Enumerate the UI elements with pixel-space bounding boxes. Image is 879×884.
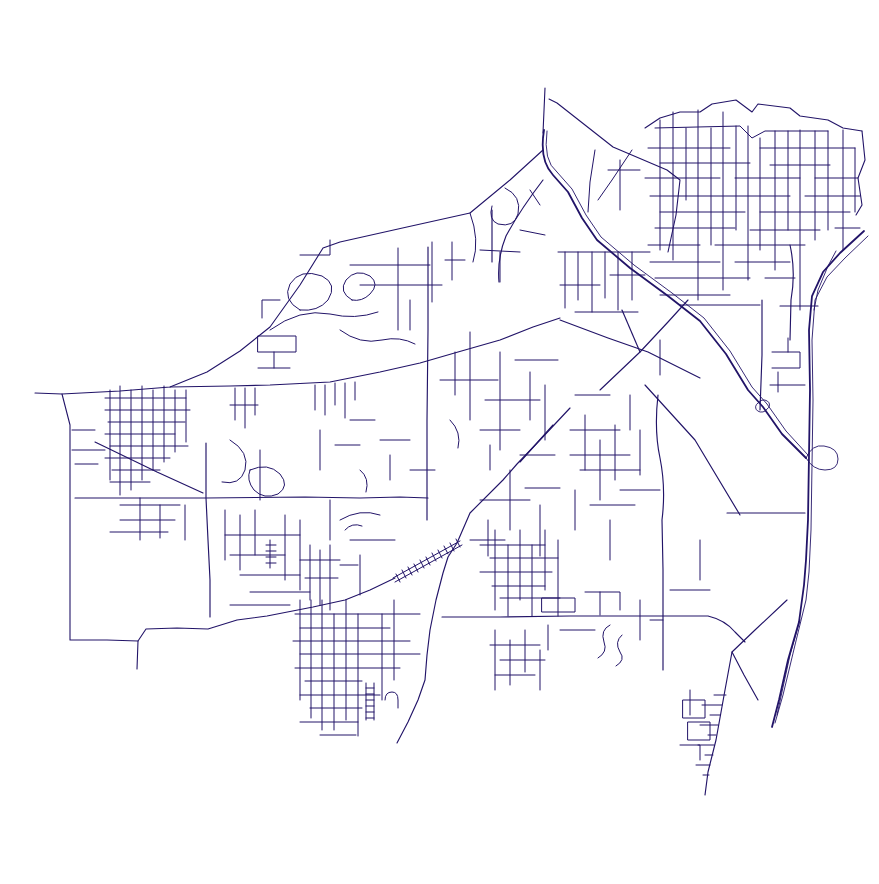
layer-streets: [72, 110, 860, 775]
map-stage: [0, 0, 879, 884]
layer-highway: [543, 130, 864, 727]
layer-arterial: [75, 180, 818, 795]
layer-railroad: [393, 539, 462, 582]
layer-highway-strands: [546, 131, 868, 723]
street-network-svg: [0, 0, 879, 884]
